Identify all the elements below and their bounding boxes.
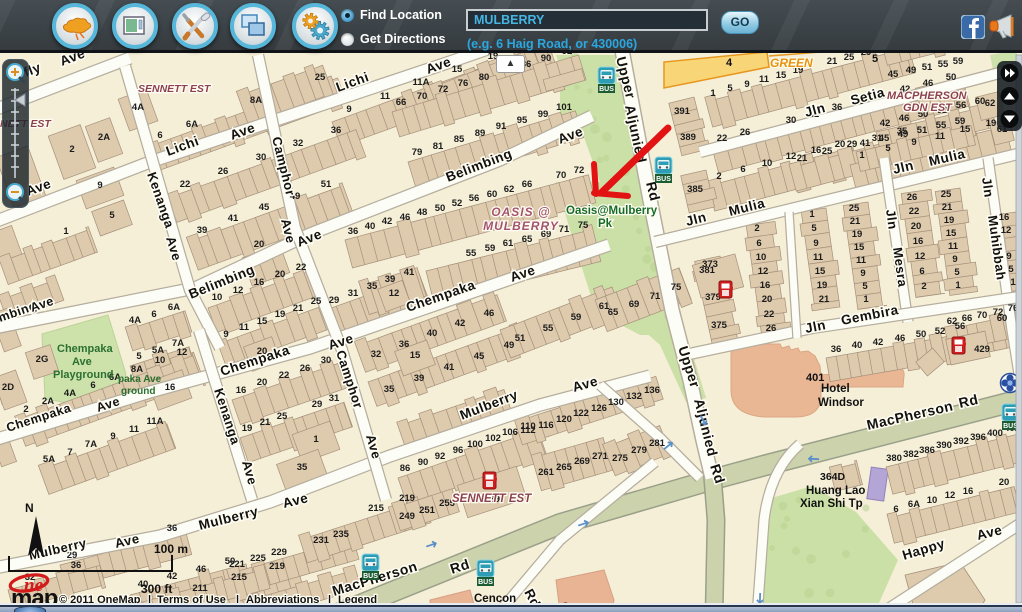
svg-text:25: 25	[315, 72, 326, 83]
svg-text:72: 72	[574, 165, 585, 176]
svg-text:Oasis@Mulberry: Oasis@Mulberry	[566, 205, 658, 217]
svg-text:50: 50	[435, 203, 446, 214]
svg-text:25: 25	[822, 146, 833, 157]
svg-text:4: 4	[726, 57, 733, 69]
svg-text:20: 20	[257, 377, 268, 388]
svg-text:60: 60	[975, 96, 986, 107]
svg-text:75: 75	[671, 282, 682, 293]
svg-text:56: 56	[469, 193, 480, 204]
svg-text:72: 72	[438, 84, 449, 95]
svg-text:112: 112	[520, 425, 535, 436]
svg-text:49: 49	[906, 65, 917, 76]
svg-text:45: 45	[259, 202, 270, 213]
svg-text:11: 11	[813, 252, 824, 263]
svg-text:22: 22	[909, 206, 920, 217]
svg-text:36: 36	[832, 102, 843, 113]
svg-text:12: 12	[758, 266, 769, 277]
svg-text:10: 10	[155, 355, 166, 366]
svg-text:25: 25	[941, 189, 952, 200]
svg-text:22: 22	[717, 133, 728, 144]
svg-text:66: 66	[396, 97, 407, 108]
svg-text:BUS: BUS	[478, 579, 493, 586]
svg-text:31: 31	[348, 288, 359, 299]
svg-text:2A: 2A	[98, 132, 110, 143]
svg-text:11: 11	[129, 424, 140, 435]
svg-text:16: 16	[236, 385, 247, 396]
svg-text:Huang Lao: Huang Lao	[806, 485, 865, 497]
svg-text:375: 375	[711, 320, 728, 331]
svg-text:1: 1	[313, 434, 319, 445]
svg-text:SENNETT EST: SENNETT EST	[138, 83, 212, 95]
svg-text:2: 2	[921, 281, 926, 292]
svg-text:36: 36	[331, 125, 342, 136]
svg-text:5: 5	[727, 83, 733, 94]
svg-text:39: 39	[414, 373, 425, 384]
svg-text:42: 42	[873, 337, 884, 348]
svg-text:45: 45	[879, 133, 890, 144]
svg-text:9: 9	[223, 329, 228, 340]
svg-text:5: 5	[885, 143, 891, 154]
svg-text:2G: 2G	[36, 354, 49, 365]
svg-text:6A: 6A	[908, 499, 920, 510]
svg-text:60: 60	[487, 189, 498, 200]
svg-text:46: 46	[400, 212, 411, 223]
svg-text:389: 389	[680, 132, 696, 143]
svg-text:15: 15	[776, 70, 787, 81]
svg-text:Jln: Jln	[979, 176, 997, 198]
svg-text:BUS: BUS	[363, 573, 378, 580]
svg-text:5: 5	[862, 281, 868, 292]
svg-text:231: 231	[313, 535, 330, 546]
svg-text:30: 30	[256, 152, 267, 163]
svg-text:71: 71	[559, 224, 570, 235]
svg-text:390: 390	[936, 440, 952, 451]
svg-text:40: 40	[852, 340, 863, 351]
svg-text:229: 229	[271, 547, 287, 558]
svg-text:364D: 364D	[820, 471, 846, 483]
svg-text:65: 65	[522, 234, 533, 245]
svg-text:380: 380	[886, 453, 902, 464]
svg-text:39: 39	[385, 274, 396, 285]
svg-text:ground: ground	[121, 386, 155, 397]
svg-text:22: 22	[180, 179, 191, 190]
svg-text:25: 25	[277, 411, 288, 422]
svg-text:9: 9	[97, 180, 102, 191]
svg-text:16: 16	[254, 277, 265, 288]
svg-text:16: 16	[963, 486, 974, 497]
svg-text:55: 55	[936, 120, 947, 131]
svg-text:Hotel: Hotel	[821, 383, 850, 395]
svg-text:25: 25	[849, 203, 860, 214]
svg-text:19: 19	[275, 309, 286, 320]
svg-text:62: 62	[947, 316, 958, 327]
svg-text:46: 46	[899, 113, 910, 124]
svg-text:62: 62	[985, 98, 996, 109]
svg-text:61: 61	[503, 238, 514, 249]
svg-text:80: 80	[479, 72, 490, 83]
svg-text:50: 50	[946, 72, 957, 83]
svg-text:4A: 4A	[64, 388, 76, 399]
svg-text:51: 51	[917, 125, 928, 136]
svg-text:5: 5	[1008, 264, 1014, 275]
svg-text:215: 215	[368, 503, 385, 514]
svg-text:26: 26	[766, 323, 777, 334]
svg-text:15: 15	[452, 64, 463, 75]
svg-text:SENNETT EST: SENNETT EST	[452, 493, 532, 505]
svg-text:42: 42	[382, 216, 393, 227]
svg-text:66: 66	[962, 313, 973, 324]
svg-text:50: 50	[916, 329, 927, 340]
svg-text:11A: 11A	[147, 416, 164, 427]
svg-text:12: 12	[786, 151, 797, 162]
svg-text:20: 20	[911, 221, 922, 232]
svg-text:40: 40	[365, 221, 376, 232]
svg-text:51: 51	[922, 62, 933, 73]
svg-text:4A: 4A	[129, 315, 141, 326]
svg-text:122: 122	[573, 408, 589, 419]
svg-text:100 m: 100 m	[154, 542, 188, 556]
svg-text:Playground: Playground	[53, 369, 114, 381]
svg-text:32: 32	[371, 349, 382, 360]
svg-text:396: 396	[970, 432, 986, 443]
svg-text:10: 10	[927, 495, 938, 506]
svg-text:45: 45	[474, 351, 485, 362]
svg-text:21: 21	[942, 202, 953, 213]
svg-text:69: 69	[629, 299, 640, 310]
svg-text:120: 120	[556, 414, 572, 425]
svg-text:42: 42	[880, 118, 891, 129]
svg-text:70: 70	[977, 310, 988, 321]
svg-text:95: 95	[517, 115, 528, 126]
svg-text:26: 26	[740, 127, 751, 138]
svg-text:46: 46	[895, 333, 906, 344]
svg-text:21: 21	[850, 216, 861, 227]
svg-text:21: 21	[260, 417, 271, 428]
svg-text:36: 36	[831, 344, 842, 355]
svg-text:26: 26	[218, 166, 229, 177]
svg-text:11: 11	[239, 322, 250, 333]
svg-text:2: 2	[716, 171, 721, 182]
svg-text:46: 46	[484, 308, 495, 319]
svg-text:11: 11	[948, 241, 959, 252]
svg-text:235: 235	[333, 529, 350, 540]
svg-text:101: 101	[556, 102, 573, 113]
svg-text:130: 130	[608, 397, 624, 408]
svg-text:36: 36	[167, 523, 178, 534]
svg-text:19: 19	[242, 423, 253, 434]
svg-text:42: 42	[167, 571, 178, 582]
svg-text:116: 116	[538, 420, 553, 431]
svg-text:48: 48	[417, 207, 428, 218]
svg-text:55: 55	[938, 59, 949, 70]
svg-text:249: 249	[399, 511, 415, 522]
svg-text:62: 62	[504, 184, 515, 195]
svg-text:15: 15	[854, 242, 865, 253]
svg-text:36: 36	[348, 226, 359, 237]
svg-text:41: 41	[404, 267, 415, 278]
svg-text:6A: 6A	[186, 119, 198, 130]
svg-text:89: 89	[475, 128, 486, 139]
svg-text:90: 90	[541, 53, 552, 64]
svg-text:BUS: BUS	[599, 86, 614, 93]
svg-text:70: 70	[417, 91, 428, 102]
svg-text:225: 225	[250, 553, 267, 564]
svg-text:281: 281	[649, 438, 666, 449]
svg-text:6: 6	[893, 504, 898, 515]
svg-text:16: 16	[760, 280, 771, 291]
svg-text:16: 16	[165, 382, 176, 393]
svg-text:386: 386	[919, 445, 935, 456]
svg-text:30: 30	[786, 115, 797, 126]
svg-text:275: 275	[612, 453, 629, 464]
svg-text:MULBERRY: MULBERRY	[483, 219, 559, 233]
svg-text:265: 265	[556, 462, 573, 473]
svg-text:1: 1	[710, 88, 716, 99]
svg-text:59: 59	[953, 56, 964, 67]
svg-text:51: 51	[515, 333, 526, 344]
svg-text:106: 106	[502, 427, 518, 438]
svg-text:70: 70	[556, 170, 567, 181]
svg-text:41: 41	[228, 213, 239, 224]
svg-text:6A: 6A	[168, 302, 180, 313]
svg-text:2D: 2D	[2, 382, 14, 393]
svg-text:26: 26	[907, 192, 918, 203]
svg-text:51: 51	[321, 179, 332, 190]
svg-text:52: 52	[452, 198, 463, 209]
svg-text:6: 6	[740, 164, 745, 175]
svg-text:261: 261	[538, 467, 555, 478]
svg-text:4A: 4A	[132, 102, 144, 113]
svg-text:20: 20	[275, 269, 286, 280]
svg-text:21: 21	[827, 56, 838, 67]
svg-text:391: 391	[674, 106, 691, 117]
svg-text:6: 6	[157, 130, 162, 141]
svg-text:102: 102	[485, 433, 501, 444]
svg-text:6: 6	[151, 309, 156, 320]
svg-text:1: 1	[863, 294, 869, 305]
svg-text:20: 20	[999, 477, 1010, 488]
svg-text:16: 16	[811, 145, 822, 156]
svg-text:OASIS @: OASIS @	[491, 205, 550, 219]
svg-text:49: 49	[504, 340, 515, 351]
svg-text:35: 35	[297, 462, 308, 473]
svg-text:90: 90	[418, 457, 429, 468]
svg-text:219: 219	[399, 493, 415, 504]
svg-text:Chempaka: Chempaka	[57, 343, 114, 355]
svg-text:20: 20	[254, 239, 265, 250]
svg-text:Jln: Jln	[883, 208, 901, 230]
svg-text:8A: 8A	[250, 95, 262, 106]
svg-text:21: 21	[293, 303, 304, 314]
svg-text:9: 9	[744, 79, 749, 90]
svg-text:9: 9	[346, 104, 351, 115]
svg-text:GDN EST: GDN EST	[903, 102, 953, 114]
svg-text:21: 21	[797, 153, 808, 164]
svg-text:32: 32	[293, 138, 304, 149]
svg-text:271: 271	[592, 451, 609, 462]
svg-text:29: 29	[847, 139, 858, 150]
svg-text:35: 35	[384, 384, 395, 395]
svg-text:35: 35	[367, 281, 378, 292]
svg-text:385: 385	[687, 184, 704, 195]
svg-text:20: 20	[762, 294, 773, 305]
svg-text:19: 19	[986, 118, 997, 129]
svg-text:11: 11	[856, 255, 867, 266]
svg-text:N: N	[25, 501, 34, 515]
svg-text:22: 22	[764, 309, 775, 320]
svg-text:85: 85	[454, 134, 465, 145]
svg-text:221: 221	[229, 559, 246, 570]
svg-text:15: 15	[946, 228, 957, 239]
svg-text:46: 46	[923, 78, 934, 89]
svg-text:132: 132	[626, 391, 642, 402]
svg-text:11: 11	[759, 74, 770, 85]
svg-text:59: 59	[485, 243, 496, 254]
svg-text:86: 86	[400, 463, 411, 474]
svg-text:7A: 7A	[85, 439, 97, 450]
svg-text:10: 10	[756, 252, 767, 263]
svg-text:279: 279	[631, 445, 647, 456]
svg-text:22: 22	[279, 370, 290, 381]
svg-text:39: 39	[197, 225, 208, 236]
svg-text:251: 251	[419, 505, 436, 516]
svg-text:25: 25	[844, 52, 855, 63]
svg-text:11: 11	[935, 131, 946, 142]
svg-text:5: 5	[109, 210, 115, 221]
svg-text:7: 7	[67, 447, 72, 458]
svg-text:5: 5	[811, 223, 817, 234]
svg-text:136: 136	[644, 385, 660, 396]
svg-text:9: 9	[911, 137, 916, 148]
svg-text:46: 46	[196, 564, 207, 575]
svg-text:42: 42	[455, 318, 466, 329]
svg-text:12: 12	[945, 490, 956, 501]
svg-text:382: 382	[903, 449, 919, 460]
svg-text:269: 269	[574, 456, 590, 467]
svg-text:45: 45	[888, 69, 899, 80]
svg-text:429: 429	[974, 344, 990, 355]
svg-text:215: 215	[231, 572, 248, 583]
svg-text:6: 6	[919, 266, 924, 277]
svg-text:96: 96	[453, 445, 464, 456]
svg-text:373: 373	[702, 259, 718, 270]
svg-text:1: 1	[63, 226, 69, 237]
svg-text:Windsor: Windsor	[818, 397, 864, 409]
svg-text:59: 59	[571, 312, 582, 323]
svg-text:25: 25	[311, 296, 322, 307]
svg-text:49: 49	[898, 129, 909, 140]
svg-text:Pk: Pk	[598, 218, 613, 230]
svg-text:10: 10	[212, 292, 223, 303]
svg-text:100: 100	[467, 439, 483, 450]
svg-text:Ave: Ave	[72, 356, 92, 368]
svg-text:9: 9	[110, 431, 115, 442]
svg-text:11A: 11A	[413, 77, 430, 88]
svg-text:2: 2	[69, 144, 74, 155]
svg-text:99: 99	[538, 109, 549, 120]
svg-text:5: 5	[872, 53, 878, 65]
svg-text:71: 71	[650, 291, 661, 302]
svg-text:15: 15	[410, 350, 421, 361]
svg-text:9: 9	[813, 238, 818, 249]
svg-text:211: 211	[192, 583, 208, 594]
svg-text:26: 26	[300, 363, 311, 374]
svg-text:2: 2	[754, 223, 759, 234]
svg-text:1: 1	[955, 280, 961, 291]
svg-text:29: 29	[329, 295, 340, 306]
svg-text:91: 91	[496, 121, 507, 132]
svg-text:81: 81	[433, 141, 444, 152]
svg-text:392: 392	[953, 436, 969, 447]
svg-text:1: 1	[859, 150, 865, 161]
svg-text:12: 12	[177, 347, 188, 358]
svg-text:15: 15	[815, 266, 826, 277]
svg-text:66: 66	[522, 179, 533, 190]
svg-text:11: 11	[380, 91, 391, 102]
svg-text:5: 5	[136, 351, 142, 362]
svg-text:22: 22	[296, 262, 307, 273]
svg-text:41: 41	[860, 138, 871, 149]
svg-text:59: 59	[955, 116, 966, 127]
svg-text:GREEN: GREEN	[770, 56, 813, 70]
svg-text:Xian Shi Tp: Xian Shi Tp	[800, 498, 863, 510]
svg-text:55: 55	[466, 248, 477, 259]
svg-text:paka Ave: paka Ave	[118, 374, 162, 385]
svg-text:5: 5	[954, 267, 960, 278]
svg-text:BUS: BUS	[656, 176, 671, 183]
svg-text:36: 36	[399, 339, 410, 350]
svg-text:126: 126	[591, 403, 607, 414]
svg-text:19: 19	[944, 215, 955, 226]
svg-text:19: 19	[852, 229, 863, 240]
svg-text:41: 41	[444, 362, 455, 373]
svg-text:1: 1	[1010, 277, 1016, 288]
svg-text:6: 6	[90, 380, 95, 391]
svg-text:52: 52	[935, 326, 946, 337]
svg-text:30: 30	[321, 355, 332, 366]
svg-text:10: 10	[762, 158, 773, 169]
svg-text:9: 9	[952, 254, 957, 265]
svg-text:15: 15	[257, 316, 268, 327]
svg-text:9: 9	[860, 268, 865, 279]
svg-text:12: 12	[915, 251, 926, 262]
svg-text:5A: 5A	[43, 454, 55, 465]
svg-text:6: 6	[756, 238, 761, 249]
svg-text:55: 55	[543, 323, 554, 334]
svg-text:40: 40	[427, 328, 438, 339]
svg-text:19: 19	[817, 280, 828, 291]
svg-text:219: 219	[269, 561, 285, 572]
svg-text:29: 29	[312, 399, 323, 410]
svg-text:12: 12	[233, 285, 244, 296]
svg-text:MACPHERSON: MACPHERSON	[887, 90, 968, 102]
svg-text:16: 16	[913, 236, 924, 247]
svg-text:75: 75	[578, 220, 589, 231]
svg-text:1: 1	[809, 209, 815, 220]
svg-text:31: 31	[329, 393, 340, 404]
svg-text:12: 12	[389, 288, 400, 299]
svg-text:400: 400	[987, 428, 1003, 439]
svg-text:72: 72	[993, 307, 1004, 318]
svg-text:79: 79	[412, 147, 423, 158]
svg-text:20: 20	[835, 139, 846, 150]
svg-text:76: 76	[458, 78, 469, 89]
svg-text:92: 92	[435, 451, 446, 462]
svg-text:21: 21	[819, 294, 830, 305]
svg-text:65: 65	[608, 307, 619, 318]
svg-text:36: 36	[71, 560, 82, 571]
